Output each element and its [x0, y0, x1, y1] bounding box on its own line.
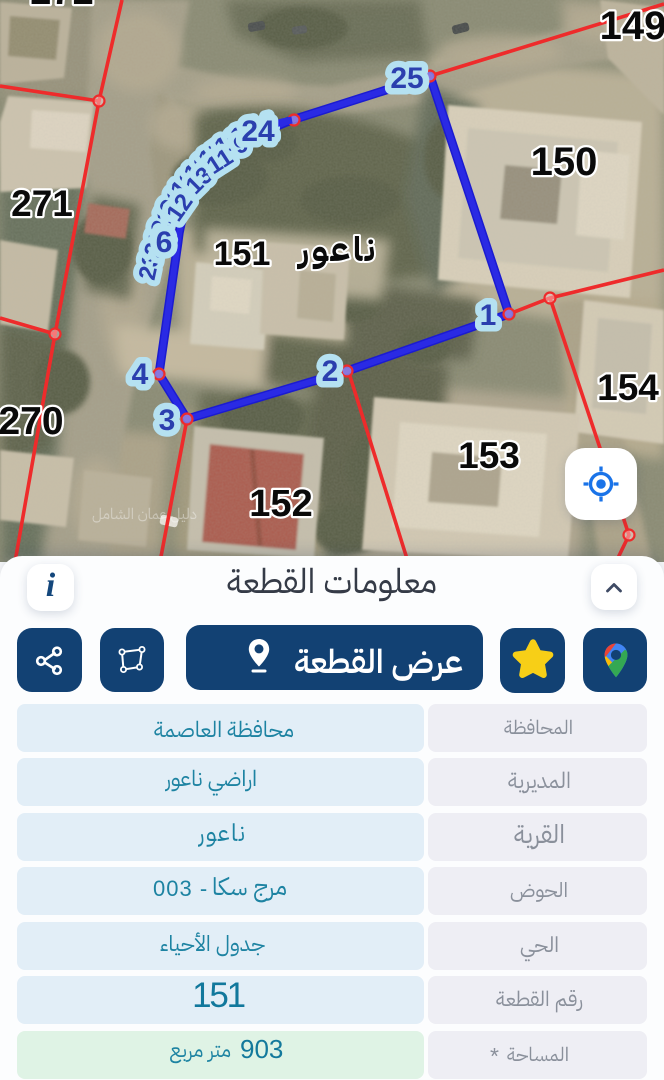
svg-text:24: 24 [241, 115, 275, 148]
svg-text:270: 270 [0, 400, 64, 443]
svg-text:271: 271 [11, 183, 73, 224]
svg-text:151: 151 [214, 235, 271, 273]
svg-text:1: 1 [480, 299, 497, 332]
svg-text:272: 272 [30, 0, 93, 13]
svg-text:3: 3 [159, 404, 176, 437]
svg-text:154: 154 [597, 367, 659, 408]
svg-text:152: 152 [249, 483, 312, 525]
svg-text:150: 150 [531, 140, 598, 184]
svg-text:149: 149 [600, 4, 664, 48]
svg-text:153: 153 [458, 435, 520, 476]
svg-text:25: 25 [390, 62, 423, 95]
svg-text:6: 6 [156, 226, 173, 259]
svg-text:2: 2 [322, 355, 339, 388]
svg-text:4: 4 [132, 358, 149, 391]
